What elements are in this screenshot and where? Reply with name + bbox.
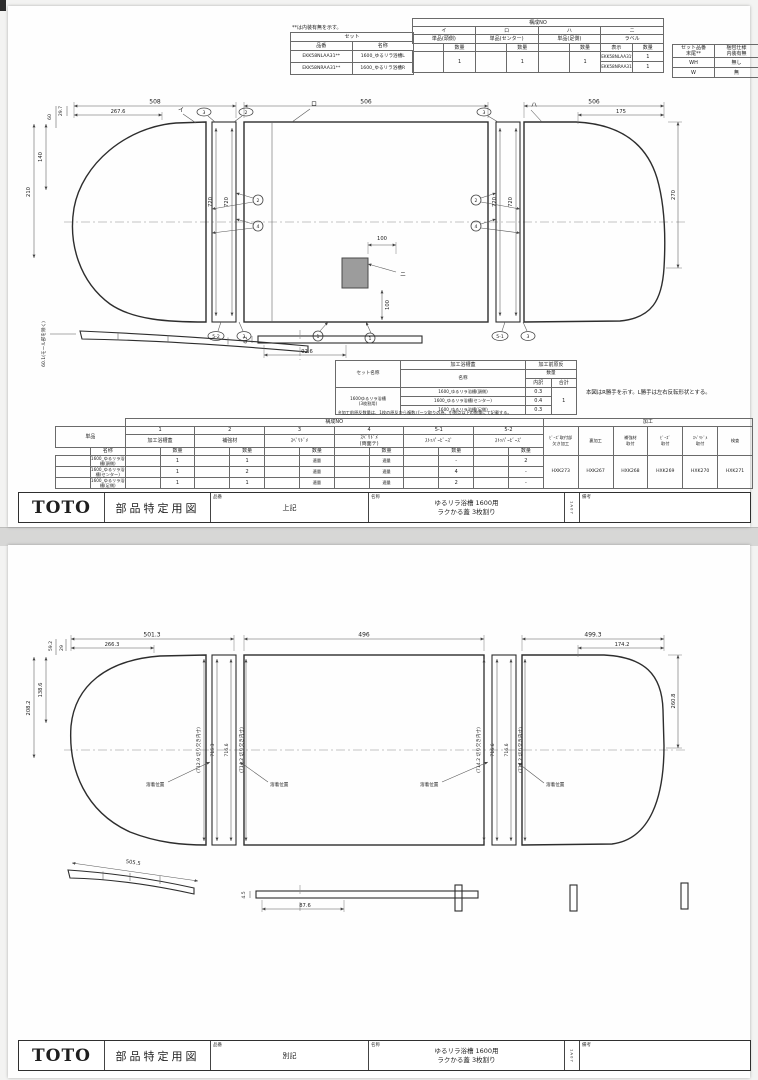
table-row: W 無 [673,68,758,78]
pack-value: W [673,68,715,78]
remarks-label: 備考 [582,494,591,500]
qty-header: 数量 [160,447,195,455]
qty-value: 1 [632,52,663,62]
bom-qty: 2 [508,455,543,466]
qty-value: 0.3 [526,388,552,397]
bom-qty: 4 [439,466,474,477]
weld-label: 溶着位置 [270,781,289,788]
panel-name: 1600_ゆるリラ浴槽(センター) [401,397,526,406]
doc-type: 部品特定用図 [105,1041,211,1070]
bom-qty: 2 [439,477,474,488]
config-table: 構成NO イ ロ ハ ニ 単品(頭側) 単品(センター) 単品(足側) ラベル … [412,18,664,73]
inner-pack-note: **は内装有無を示す。 [292,24,342,31]
balloon-2: 2 [245,110,248,116]
panel-name: 1600_ゆるリラ浴槽(頭側) [401,388,526,397]
dim-720: 720 [208,197,214,207]
dimensions: 501.3 266.3 29 59.2 138.6 208.2 496 499.… [26,632,682,759]
qty-header: 数量 [439,447,474,455]
bom-qty: 適量 [369,466,404,477]
dim-712-9-cutout: (712.9 切り欠き内寸) [195,727,202,773]
weld-label: 溶着位置 [420,781,439,788]
dim-59-2: 59.2 [48,641,54,651]
panel-mark-ha: ハ [531,102,537,109]
bom-col-label: ｽﾍﾞﾘﾄﾞﾒ (両面テ) [334,434,404,447]
bom-col-no: 4 [334,426,404,434]
dim-506: 506 [588,99,600,106]
qty-value: 1 [444,52,475,73]
remarks-cell: 備考 [580,1041,750,1070]
toto-logo: TOTO [19,1041,105,1070]
part-name-line1: ゆるリラ浴槽 1600用 [434,499,498,507]
remarks-label: 備考 [582,1042,591,1048]
config-col-ni: ニ [601,27,664,35]
qty-header: 数量 [369,447,404,455]
dim-100: 100 [377,236,387,242]
bom-proc-header: ｽﾍﾞﾘﾄﾞﾒ 取付 [683,426,718,455]
balloon-2: 2 [257,198,260,204]
part-number-cell: 品番 上記 [211,493,369,522]
dim-29: 29 [59,645,65,651]
dim-140: 140 [38,152,44,162]
table-row: EKK58NRAA31** 1600_ゆるリラ浴槽R [291,63,414,75]
config-label: 単品(足側) [538,35,601,44]
bom-process-band: 加工 [543,419,752,427]
sheet1-drawing: 508 267.6 29.7 60 140 210 720 720 720 72… [18,82,742,382]
title-block: TOTO 部品特定用図 品番 上記 名称 ゆるリラ浴槽 1600用 ラクかる蓋 … [18,492,751,523]
sheet-1: **は内装有無を示す。 セット 品番 名称 EKK58NLAA31** 1600… [8,6,750,527]
qty-header: 数量 [508,447,543,455]
part-name-label: 名称 [371,494,380,500]
bom-name-header: 名称 [90,447,125,455]
bom-col-label: 加工浴槽蓋 [125,434,195,447]
config-col-i: イ [413,27,476,35]
bom-col-label: ｽﾄｯﾊﾟｰﾋﾞｰｽﾞ [474,434,544,447]
pack-col1: セット品番 末尾** [673,45,715,58]
revision-cell: 1A07 [565,493,580,522]
part-number-cell: 品番 別記 [211,1041,369,1070]
bom-col-no: 5-2 [474,426,544,434]
process-code: HXK269 [648,455,683,488]
dim-715-3: 715.3 [210,743,216,756]
bom-item-name: 1600_ゆるリラ浴槽(足側) [90,477,125,488]
revision-code: 1A07 [570,1049,575,1063]
process-code: HXK270 [683,455,718,488]
bom-col-no: 1 [125,426,195,434]
dim-720: 720 [508,197,514,207]
dim-29-7: 29.7 [58,106,64,116]
set-name-header: セット名称 [336,361,401,388]
weld-position-labels: 溶着位置 溶着位置 溶着位置 溶着位置 [146,762,565,788]
qty-value: 0.3 [526,406,552,415]
processing-table: セット名称 加工浴槽蓋 加工前原反 名称 数量 内訳 合計 1600ゆるリラ浴槽… [335,360,577,415]
balloon-3: 3 [483,110,486,116]
bom-qty: 1 [160,455,195,466]
side-profiles: 505.5 4.5 87.6 [68,859,688,914]
processing-note: ※加工前原反数量は、1枚の原反から複数パーツ取りの為、小数点以下の数量にて記載す… [338,410,512,416]
revision-cell: 1A07 [565,1041,580,1070]
label-code: EKK58NLAA31** [601,52,632,62]
total-header: 合計 [551,379,577,388]
title-block: TOTO 部品特定用図 品番 別記 名称 ゆるリラ浴槽 1600用 ラクかる蓋 … [18,1040,751,1071]
bom-qty: 2 [230,466,265,477]
bom-item-name: 1600_ゆるリラ浴槽(頭側) [90,455,125,466]
qty-value: 1 [507,52,538,73]
bom-proc-header: ﾋﾞｰｽﾞ取付部 欠き加工 [543,426,578,455]
bom-qty: 適量 [369,455,404,466]
dim-174-2: 174.2 [615,642,630,648]
bom-qty: 1 [160,466,195,477]
dim-716-6: 716.6 [224,743,230,756]
qty-header: 数量 [444,44,475,52]
balloon-4: 4 [257,224,260,230]
part-name-line2: ラクかる蓋 3枚割り [437,508,495,516]
dim-6-2: 6.2 [243,336,249,343]
qty-header: 数量 [507,44,538,52]
set-hinban: EKK58NRAA31** [291,63,353,75]
raw-sheet-band: 加工前原反 [526,361,577,370]
dim-4-5: 4.5 [241,891,247,898]
bom-col-no: 3 [265,426,335,434]
bom-qty: 適量 [299,477,334,488]
label-sticker [342,258,368,288]
mirror-note: 本図はR勝手を示す。L勝手は左右反転形状とする。 [586,388,711,396]
config-label: ラベル [601,35,664,44]
dim-499-3: 499.3 [584,632,601,639]
dim-505-5: 505.5 [125,859,141,867]
table-row: EKK58NLAA31** 1600_ゆるリラ浴槽L [291,51,414,63]
balloon-5-1: 5-1 [496,334,504,340]
dim-210: 210 [26,187,32,197]
config-col-ha: ハ [538,27,601,35]
bom-col-no: 5-1 [404,426,474,434]
dim-270: 270 [671,190,677,200]
bom-table: 構成NO 加工 単品 1 2 3 4 5-1 5-2 ﾋﾞｰｽﾞ取付部 欠き加工… [55,418,753,489]
label-code: EKK58NRAA31** [601,62,632,73]
bom-title: 構成NO [125,419,543,427]
total-value: 1 [551,388,577,415]
dim-60-1-mall: 60.1(モール部を除く) [40,321,47,367]
part-number-value: 上記 [283,503,297,513]
balloon-3: 3 [203,110,206,116]
bom-proc-header: 検査 [718,426,753,455]
bom-qty: - [439,455,474,466]
qty-value: 0.4 [526,397,552,406]
set-table: セット 品番 名称 EKK58NLAA31** 1600_ゆるリラ浴槽L EKK… [290,32,414,75]
bom-qty: 適量 [299,466,334,477]
dim-714-2-cutout: (714.2 切り欠き内寸) [517,727,524,773]
weld-label: 溶着位置 [146,781,165,788]
set-col-hinban: 品番 [291,42,353,51]
bom-qty: 適量 [299,455,334,466]
part-number-value: 別記 [283,1051,297,1061]
dim-506: 506 [360,99,372,106]
sheet2-drawing: 501.3 266.3 29 59.2 138.6 208.2 496 499.… [18,558,742,968]
scan-artifact [0,0,6,11]
set-table-title: セット [291,33,414,42]
config-col-ro: ロ [475,27,538,35]
table-row: 1600_ゆるリラ浴槽(頭側) 1 1 適量 適量 - 2 HXK273 HXK… [56,455,753,466]
dim-266-3: 266.3 [105,642,120,648]
bom-col-label: ｽﾄｯﾊﾟｰﾋﾞｰｽﾞ [404,434,474,447]
dim-714-2-cutout: (714.2 切り欠き内寸) [238,727,245,773]
bom-col-label: ｽﾍﾞﾘﾄﾞﾒ [265,434,335,447]
label-mark-ni: ニ [400,271,406,278]
bom-proc-header: 裏加工 [578,426,613,455]
doc-type: 部品特定用図 [105,493,211,522]
dim-260-8: 260.8 [671,694,677,709]
part-name-label: 名称 [371,1042,380,1048]
bom-qty: - [508,477,543,488]
dim-720: 720 [492,197,498,207]
balloon-1: 1 [317,334,320,340]
balloon-2: 2 [475,198,478,204]
dim-138-6: 138.6 [38,683,44,698]
table-row: 1600ゆるリラ浴槽 (3枚割用) 1600_ゆるリラ浴槽(頭側) 0.3 1 [336,388,577,397]
qty-value: 1 [569,52,600,73]
scanned-drawing-page: { "sheet1": { "note_top": "**は内装有無を示す。",… [0,0,758,1080]
qty-value: 1 [632,62,663,73]
balloon-3: 3 [527,334,530,340]
panel-mark-ro: ロ [311,101,317,108]
dim-501-3: 501.3 [143,632,160,639]
bom-proc-header: 補強材 取付 [613,426,648,455]
dim-175: 175 [616,109,626,115]
bom-item-header: 単品 [56,426,126,447]
config-title: 構成NO [413,19,664,27]
processed-lid-band: 加工浴槽蓋 [401,361,526,370]
page-divider [0,527,758,546]
set-name: 1600_ゆるリラ浴槽L [352,51,414,63]
pack-col2: 梱包仕様 内装有無 [715,45,758,58]
dim-267-6: 267.6 [111,109,126,115]
table-row: WH 無し [673,58,758,68]
part-name-cell: 名称 ゆるリラ浴槽 1600用 ラクかる蓋 3枚割り [369,493,565,522]
part-name-line2: ラクかる蓋 3枚割り [437,1056,495,1064]
qty-header: 数量 [230,447,265,455]
part-name-cell: 名称 ゆるリラ浴槽 1600用 ラクかる蓋 3枚割り [369,1041,565,1070]
bom-qty: - [508,466,543,477]
dim-720: 720 [224,197,230,207]
sheet-2: 501.3 266.3 29 59.2 138.6 208.2 496 499.… [8,545,750,1078]
bom-col-no: 2 [195,426,265,434]
set-name: 1600_ゆるリラ浴槽R [352,63,414,75]
breakdown-header: 内訳 [526,379,552,388]
dim-716-6: 716.6 [504,743,510,756]
toto-logo: TOTO [19,493,105,522]
bom-proc-header: ﾋﾞｰｽﾞ 取付 [648,426,683,455]
process-code: HXK267 [578,455,613,488]
qty-header: 数量 [569,44,600,52]
bom-qty: 1 [230,477,265,488]
dim-508: 508 [149,99,161,106]
pack-value: 無し [715,58,758,68]
dim-208-2: 208.2 [26,701,32,716]
dim-92-6: 92.6 [301,349,313,355]
set-col-name: 名称 [352,42,414,51]
dim-87-6: 87.6 [299,903,311,909]
process-code: HXK271 [718,455,753,488]
dim-60: 60 [47,114,53,120]
pack-table: セット品番 末尾** 梱包仕様 内装有無 WH 無し W 無 [672,44,758,78]
balloon-1: 1 [369,336,372,342]
set-hinban: EKK58NLAA31** [291,51,353,63]
config-label: 単品(センター) [475,35,538,44]
name-header: 名称 [401,370,526,388]
remarks-cell: 備考 [580,493,750,522]
display-header: 表示 [601,44,632,52]
part-name-line1: ゆるリラ浴槽 1600用 [434,1047,498,1055]
qty-header: 数量 [526,370,577,379]
revision-code: 1A07 [570,501,575,515]
qty-header: 数量 [299,447,334,455]
part-number-label: 品番 [213,494,222,500]
pack-value: 無 [715,68,758,78]
dim-100: 100 [385,300,391,310]
balloon-4: 4 [475,224,478,230]
bom-item-name: 1600_ゆるリラ浴槽(センター) [90,466,125,477]
part-number-label: 品番 [213,1042,222,1048]
pack-value: WH [673,58,715,68]
qty-header: 数量 [632,44,663,52]
config-label: 単品(頭側) [413,35,476,44]
process-code: HXK268 [613,455,648,488]
bom-col-label: 補強材 [195,434,265,447]
dim-496: 496 [358,632,370,639]
bom-qty: 1 [160,477,195,488]
table-row: 1 1 1 EKK58NLAA31** 1 [413,52,664,62]
weld-label: 溶着位置 [546,781,565,788]
process-code: HXK273 [543,455,578,488]
bom-qty: 適量 [369,477,404,488]
bom-qty: 1 [230,455,265,466]
panel-mark-i: イ [178,107,184,114]
dim-716-6: 716.6 [490,743,496,756]
